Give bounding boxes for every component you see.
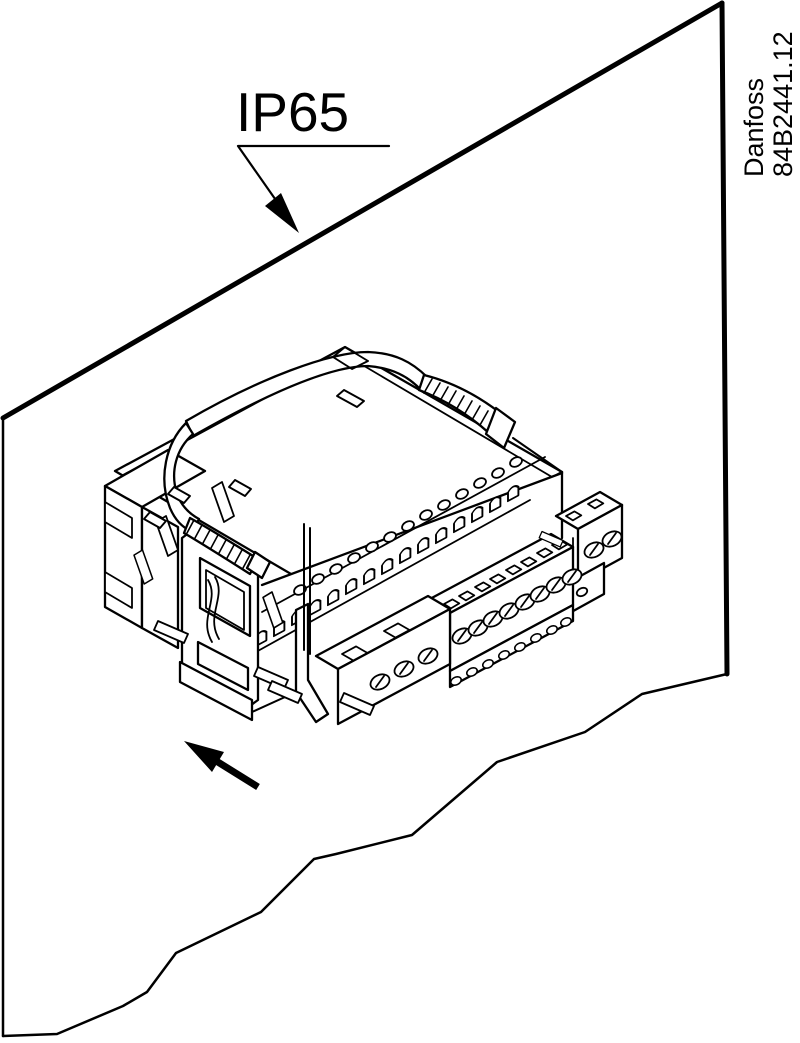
figure-canvas: IP65 Danfoss 84B2441.12 — [0, 0, 800, 1043]
ip65-leader-arrow-icon — [265, 193, 299, 233]
panel-torn-edge — [3, 674, 727, 1036]
insertion-direction-arrow-icon — [184, 741, 224, 772]
drawing-number-label: 84B2441.12 — [770, 31, 797, 177]
panel-right-edge — [722, 3, 727, 674]
protection-rating-label: IP65 — [236, 85, 349, 140]
leader-line — [238, 146, 389, 206]
controller-module — [105, 347, 624, 724]
ip65-leader — [238, 146, 389, 233]
technical-drawing — [0, 0, 800, 1043]
insertion-arrow — [184, 741, 258, 787]
brand-label: Danfoss — [741, 78, 768, 177]
